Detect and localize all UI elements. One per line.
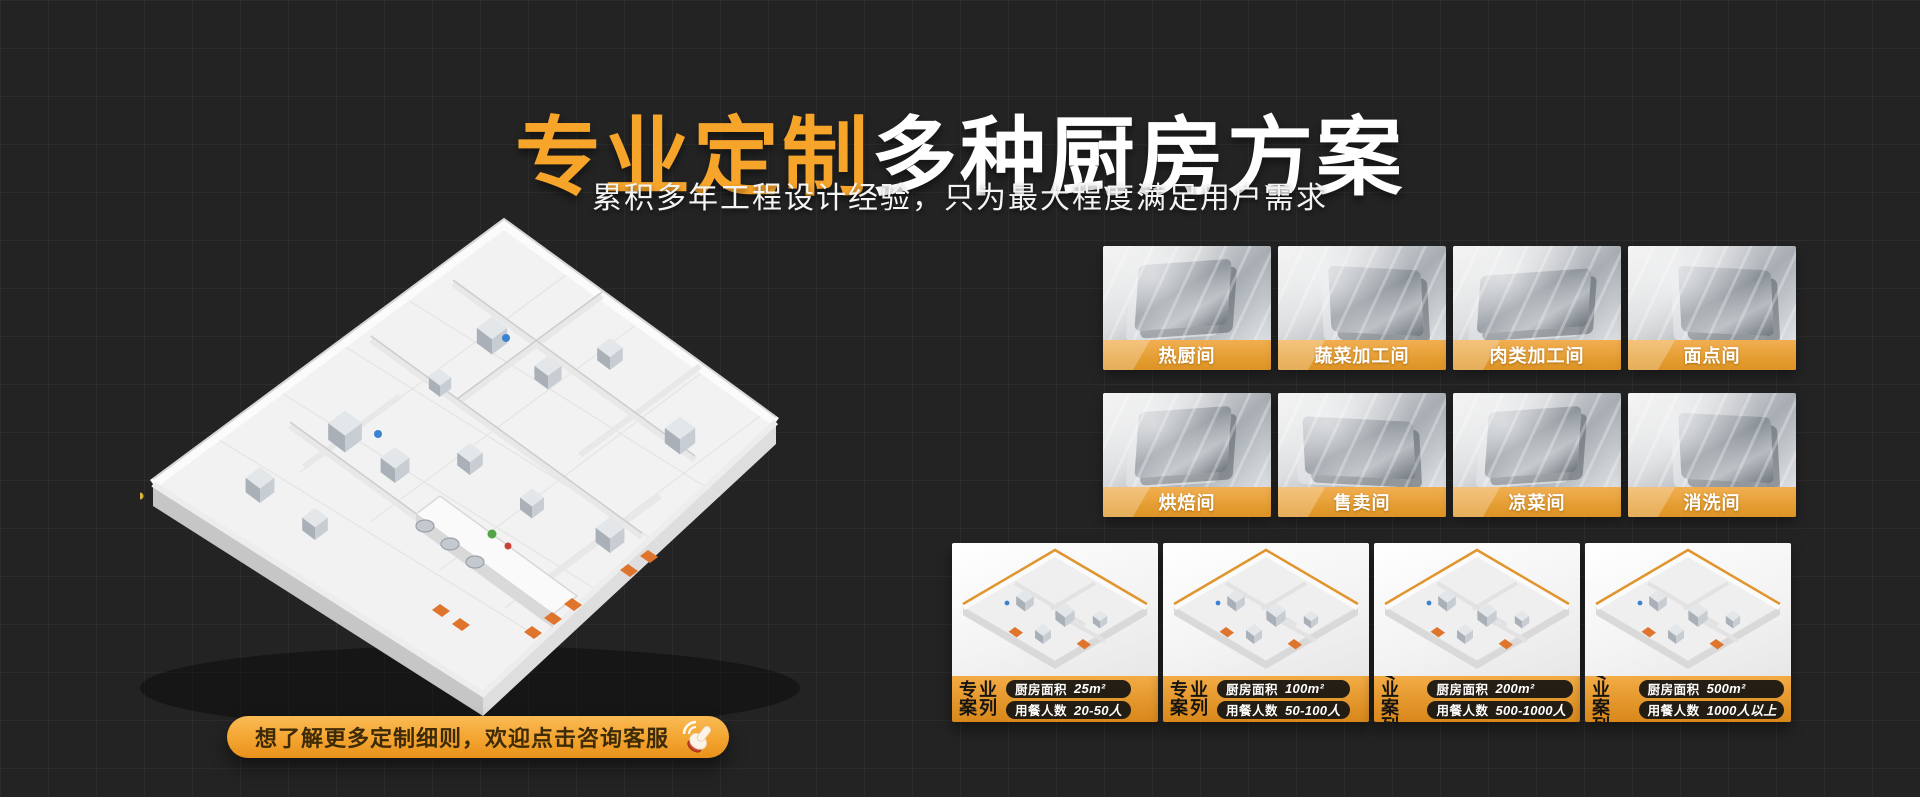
case-tag-line2: 案列 — [1592, 699, 1632, 722]
room-label-bar: 售卖间 — [1278, 487, 1446, 517]
kitchen-floorplan-illustration — [140, 196, 800, 720]
room-label-bar: 面点间 — [1628, 340, 1796, 370]
case-specs: 厨房面积 25m² 用餐人数 20-50人 — [1006, 680, 1131, 719]
case-area-pill: 厨房面积 25m² — [1006, 680, 1131, 698]
case-info-bar: 专业 案列 厨房面积 500m² 用餐人数 1000人以上 — [1585, 676, 1791, 722]
room-label: 烘焙间 — [1159, 489, 1216, 515]
room-label-bar: 肉类加工间 — [1453, 340, 1621, 370]
room-label: 凉菜间 — [1509, 489, 1566, 515]
hand-click-icon — [679, 717, 719, 757]
case-floorplan-thumb — [1374, 543, 1580, 676]
case-tag-line2: 案列 — [1381, 699, 1420, 722]
room-label-bar: 消洗间 — [1628, 487, 1796, 517]
room-tile-meat-processing[interactable]: 肉类加工间 — [1453, 246, 1621, 370]
room-photo-grid: 热厨间 蔬菜加工间 肉类加工间 面点间 烘焙间 售卖间 凉菜间 消洗间 — [1103, 246, 1796, 517]
room-tile-pastry[interactable]: 面点间 — [1628, 246, 1796, 370]
consult-cta-label: 想了解更多定制细则，欢迎点击咨询客服 — [255, 721, 669, 753]
case-diners-value: 1000人以上 — [1707, 700, 1777, 719]
room-label-bar: 蔬菜加工间 — [1278, 340, 1446, 370]
case-tag: 专业 案列 — [1170, 681, 1210, 717]
case-specs: 厨房面积 100m² 用餐人数 50-100人 — [1217, 680, 1350, 719]
room-label: 肉类加工间 — [1490, 342, 1585, 368]
room-label: 消洗间 — [1684, 489, 1741, 515]
room-tile-sales[interactable]: 售卖间 — [1278, 393, 1446, 517]
case-diners-value: 500-1000人 — [1495, 700, 1566, 719]
case-diners-label: 用餐人数 — [1436, 700, 1488, 719]
consult-cta-button[interactable]: 想了解更多定制细则，欢迎点击咨询客服 — [227, 716, 729, 758]
room-label: 面点间 — [1684, 342, 1741, 368]
case-diners-label: 用餐人数 — [1648, 700, 1700, 719]
case-tag-line1: 专业 — [1170, 681, 1210, 699]
case-floorplan-thumb — [952, 543, 1158, 676]
room-label-bar: 烘焙间 — [1103, 487, 1271, 517]
case-card-100m2[interactable]: 专业 案列 厨房面积 100m² 用餐人数 50-100人 — [1163, 543, 1369, 722]
case-area-label: 厨房面积 — [1436, 679, 1488, 698]
case-area-value: 100m² — [1285, 681, 1324, 696]
case-card-row: 专业 案列 厨房面积 25m² 用餐人数 20-50人 专业 案列 — [952, 543, 1791, 722]
case-area-label: 厨房面积 — [1015, 679, 1067, 698]
room-label-bar: 热厨间 — [1103, 340, 1271, 370]
case-area-label: 厨房面积 — [1226, 679, 1278, 698]
room-tile-cold-dishes[interactable]: 凉菜间 — [1453, 393, 1621, 517]
case-area-pill: 厨房面积 500m² — [1639, 680, 1784, 698]
case-area-pill: 厨房面积 100m² — [1217, 680, 1350, 698]
case-area-label: 厨房面积 — [1648, 679, 1700, 698]
case-diners-pill: 用餐人数 1000人以上 — [1639, 701, 1784, 719]
case-area-pill: 厨房面积 200m² — [1427, 680, 1573, 698]
case-diners-value: 50-100人 — [1285, 700, 1341, 719]
case-card-500m2[interactable]: 专业 案列 厨房面积 500m² 用餐人数 1000人以上 — [1585, 543, 1791, 722]
case-tag-line1: 专业 — [959, 681, 999, 699]
case-tag-line2: 案列 — [959, 699, 999, 717]
case-diners-label: 用餐人数 — [1226, 700, 1278, 719]
case-info-bar: 专业 案列 厨房面积 200m² 用餐人数 500-1000人 — [1374, 676, 1580, 722]
room-label: 热厨间 — [1159, 342, 1216, 368]
case-specs: 厨房面积 500m² 用餐人数 1000人以上 — [1639, 680, 1784, 719]
case-diners-label: 用餐人数 — [1015, 700, 1067, 719]
promo-banner: { "page": { "bg": "#232323", "grid_line"… — [0, 0, 1920, 797]
case-card-25m2[interactable]: 专业 案列 厨房面积 25m² 用餐人数 20-50人 — [952, 543, 1158, 722]
case-diners-pill: 用餐人数 500-1000人 — [1427, 701, 1573, 719]
case-tag-line2: 案列 — [1170, 699, 1210, 717]
case-area-value: 500m² — [1707, 681, 1746, 696]
case-floorplan-thumb — [1585, 543, 1791, 676]
case-tag: 专业 案列 — [959, 681, 999, 717]
room-tile-dishwashing[interactable]: 消洗间 — [1628, 393, 1796, 517]
room-tile-baking[interactable]: 烘焙间 — [1103, 393, 1271, 517]
case-diners-pill: 用餐人数 20-50人 — [1006, 701, 1131, 719]
case-card-200m2[interactable]: 专业 案列 厨房面积 200m² 用餐人数 500-1000人 — [1374, 543, 1580, 722]
room-tile-hot-kitchen[interactable]: 热厨间 — [1103, 246, 1271, 370]
room-label: 售卖间 — [1334, 489, 1391, 515]
case-specs: 厨房面积 200m² 用餐人数 500-1000人 — [1427, 680, 1573, 719]
case-area-value: 25m² — [1074, 681, 1106, 696]
room-tile-vegetable-processing[interactable]: 蔬菜加工间 — [1278, 246, 1446, 370]
case-info-bar: 专业 案列 厨房面积 25m² 用餐人数 20-50人 — [952, 676, 1158, 722]
case-floorplan-thumb — [1163, 543, 1369, 676]
case-diners-pill: 用餐人数 50-100人 — [1217, 701, 1350, 719]
room-label: 蔬菜加工间 — [1315, 342, 1410, 368]
case-diners-value: 20-50人 — [1074, 700, 1122, 719]
case-area-value: 200m² — [1495, 681, 1534, 696]
case-info-bar: 专业 案列 厨房面积 100m² 用餐人数 50-100人 — [1163, 676, 1369, 722]
room-label-bar: 凉菜间 — [1453, 487, 1621, 517]
